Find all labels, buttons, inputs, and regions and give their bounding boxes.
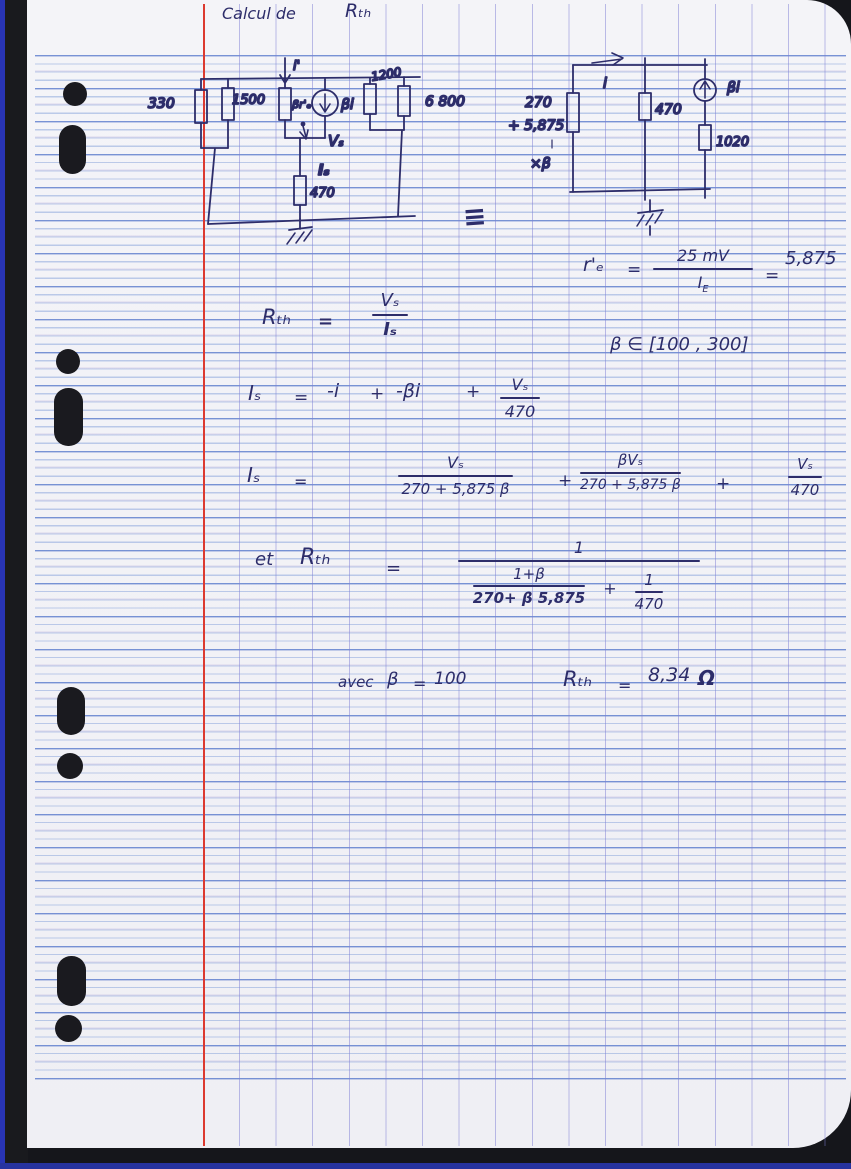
eq-rthres-num: 1 <box>574 538 584 557</box>
eq-final-equals: = <box>413 676 426 693</box>
hole-punch <box>57 687 85 735</box>
vs-label: Vₛ <box>328 132 344 150</box>
eq-isexp-frac3: Vₛ 470 <box>788 455 822 499</box>
equivalence-symbol: ≡ <box>462 201 487 232</box>
eq-re-den-sub: E <box>702 284 708 295</box>
fraction-bar <box>500 397 540 399</box>
is-label: Iₛ <box>318 161 330 179</box>
eq-re-lhs: r'ₑ <box>583 256 604 276</box>
fraction-bar <box>635 591 664 593</box>
eq-issum-equals: = <box>294 390 308 408</box>
hole-punch <box>54 388 83 446</box>
eq-rthres-s1num: 1+β <box>513 565 545 583</box>
eq-final-unit: Ω <box>698 668 715 689</box>
eq-rthdef-fraction: Vₛ Iₛ <box>372 290 408 340</box>
hole-punch <box>63 82 87 106</box>
resistor-1200-label: 1200 <box>370 65 403 84</box>
resistor-470-label: 470 <box>310 186 335 201</box>
eq-re-num: 25 mV <box>677 246 729 265</box>
source-resistor-line1: 270 <box>525 95 552 111</box>
beta-re-label: βr'ₑ <box>291 98 312 111</box>
eq-isexp-lhs: Iₛ <box>247 465 260 486</box>
eq-rthres-den: 1+β 270+ β 5,875 + 1 470 <box>473 565 664 613</box>
eq-rthres-subfrac1: 1+β 270+ β 5,875 <box>473 565 586 607</box>
fraction-bar <box>788 476 822 478</box>
hole-punch <box>55 1015 82 1042</box>
eq-re-den: IE <box>698 273 709 292</box>
eq-rthres-lhs: Rₜₕ <box>300 546 331 569</box>
eq-isexp-equals: = <box>294 474 307 491</box>
eq-issum-term2: -βi <box>396 382 420 402</box>
scan-edge-bottom <box>0 1163 851 1169</box>
fraction-bar <box>580 472 681 474</box>
fraction-bar <box>473 585 586 587</box>
source-beta-i-label: βi <box>340 97 354 113</box>
eq-rthres-bigfrac: 1 1+β 270+ β 5,875 + 1 470 <box>458 538 700 613</box>
page-title-rth: Rₜₕ <box>345 2 371 22</box>
eq-re-value: 5,875 <box>785 250 837 269</box>
source-beta-i-label: βi <box>726 80 740 96</box>
fraction-bar <box>458 560 700 562</box>
eq-isexp-f1den: 270 + 5,875 β <box>401 480 509 498</box>
current-i-label: i <box>603 76 607 92</box>
fraction-bar <box>398 475 513 477</box>
eq-issum-num: Vₛ <box>512 375 529 394</box>
eq-rthres-s2num: 1 <box>644 571 654 589</box>
eq-issum-lhs: Iₛ <box>248 383 261 404</box>
eq-rthres-plus: + <box>603 579 616 598</box>
resistor-470-label: 470 <box>655 102 682 118</box>
source-resistor-line2: + 5,875 <box>508 118 564 134</box>
fraction-bar <box>653 268 753 270</box>
eq-final-avec: avec <box>338 675 374 691</box>
eq-isexp-frac2: βVₛ 270 + 5,875 β <box>580 451 681 493</box>
resistor-1500-label: 1500 <box>232 93 265 108</box>
eq-isexp-f3num: Vₛ <box>797 455 813 473</box>
current-i-label: i' <box>293 59 300 74</box>
resistor-1020-label: 1020 <box>716 135 749 150</box>
resistor-330-label: 330 <box>148 96 175 112</box>
eq-final-lhs: Rₜₕ <box>563 668 592 690</box>
eq-issum-plus2: + <box>466 384 480 402</box>
eq-rthdef-num: Vₛ <box>380 290 399 311</box>
eq-rthdef-lhs: Rₜₕ <box>262 306 291 328</box>
eq-final-betaval: 100 <box>434 671 466 689</box>
eq-rthres-s2den: 470 <box>635 595 664 613</box>
eq-isexp-frac1: Vₛ 270 + 5,875 β <box>398 453 513 498</box>
hole-punch <box>57 753 83 779</box>
eq-final-value: 8,34 <box>648 666 690 686</box>
circuit-diagram-equivalent: i 270 + 5,875 ×β 470 βi 1020 <box>500 50 830 270</box>
eq-issum-plus1: + <box>370 386 384 404</box>
eq-rthres-subfrac2: 1 470 <box>635 571 664 613</box>
eq-isexp-plus2: + <box>716 476 730 494</box>
hole-punch <box>59 125 86 174</box>
eq-isexp-f1num: Vₛ <box>447 453 464 472</box>
resistor-6800-label: 6 800 <box>425 94 465 110</box>
eq-issum-term1: -i <box>327 382 339 402</box>
notebook-page: Calcul de Rₜₕ 330 1500 i' βr'ₑ βi <box>27 0 851 1148</box>
eq-rthres-s1den: 270+ β 5,875 <box>473 589 586 607</box>
eq-rthres-et: et <box>255 551 273 570</box>
eq-re-equals2: = <box>765 268 779 286</box>
page-title: Calcul de <box>222 6 296 23</box>
fraction-bar <box>372 314 408 316</box>
source-resistor-line3: ×β <box>530 156 551 172</box>
scan-edge-black <box>5 0 28 1169</box>
eq-re-equals: = <box>627 262 641 280</box>
eq-isexp-f2num: βVₛ <box>618 451 643 469</box>
hole-punch <box>56 349 80 374</box>
eq-rthres-equals: = <box>386 560 401 579</box>
eq-issum-fraction: Vₛ 470 <box>500 375 540 421</box>
circuit-diagram-original: 330 1500 i' βr'ₑ βi 1200 6 800 Vₛ Iₛ 470 <box>140 48 470 263</box>
eq-final-beta: β <box>387 671 399 690</box>
eq-re-fraction: 25 mV IE <box>653 246 753 292</box>
eq-rthdef-den: Iₛ <box>383 319 397 340</box>
hole-punch <box>57 956 86 1006</box>
eq-final-equals2: = <box>618 678 631 695</box>
eq-rthdef-equals: = <box>318 313 333 332</box>
eq-issum-den: 470 <box>505 402 536 421</box>
eq-isexp-f3den: 470 <box>791 481 820 499</box>
eq-isexp-plus1: + <box>558 473 572 491</box>
eq-isexp-f2den: 270 + 5,875 β <box>580 477 681 493</box>
beta-range: β ∈ [100 , 300] <box>610 336 749 355</box>
